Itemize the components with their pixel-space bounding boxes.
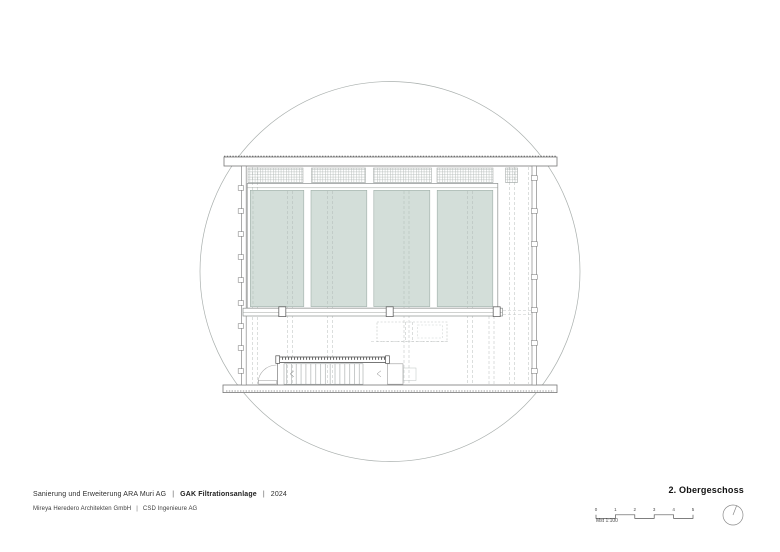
project-name: GAK Filtrationsanlage (180, 491, 257, 498)
right-column (531, 166, 537, 385)
glass-panels (250, 190, 493, 306)
scale-tick-label: 1 (614, 507, 617, 512)
separator: | (263, 491, 265, 498)
scale-tick-label: 0 (595, 507, 598, 512)
firm-credit-line: Mireya Heredero Architekten GmbH|CSD Ing… (33, 506, 197, 512)
stairs (258, 356, 416, 385)
drawing-sheet: Sanierung und Erweiterung ARA Muri AG|GA… (0, 0, 780, 552)
project-client: Sanierung und Erweiterung ARA Muri AG (33, 491, 166, 498)
railing-teeth (278, 357, 388, 359)
scale-tick-label: 3 (653, 507, 656, 512)
scale-tick-label: 5 (692, 507, 695, 512)
project-title-line: Sanierung und Erweiterung ARA Muri AG|GA… (33, 491, 287, 498)
scale-tick-label: 4 (672, 507, 675, 512)
separator: | (172, 491, 174, 498)
separator: | (136, 506, 138, 512)
plan-drawing (0, 0, 780, 552)
door-leaf (259, 380, 277, 384)
sheet-title: 2. Obergeschoss (668, 485, 744, 495)
engineer-name: CSD Ingenieure AG (143, 506, 197, 512)
mesh-band (248, 168, 518, 183)
project-year: 2024 (271, 491, 287, 498)
scale-tick-label: 2 (634, 507, 637, 512)
left-column (238, 166, 246, 385)
stair-treads (284, 364, 363, 384)
scale-label: Mst 1:100 (596, 518, 618, 524)
sill-band (243, 307, 503, 317)
roof-slab (224, 156, 557, 166)
equipment-dashed-outline (377, 322, 447, 342)
architect-name: Mireya Heredero Architekten GmbH (33, 506, 131, 512)
north-arrow-icon (723, 505, 743, 525)
floor-slab (223, 385, 557, 393)
stair-landing (388, 364, 404, 384)
